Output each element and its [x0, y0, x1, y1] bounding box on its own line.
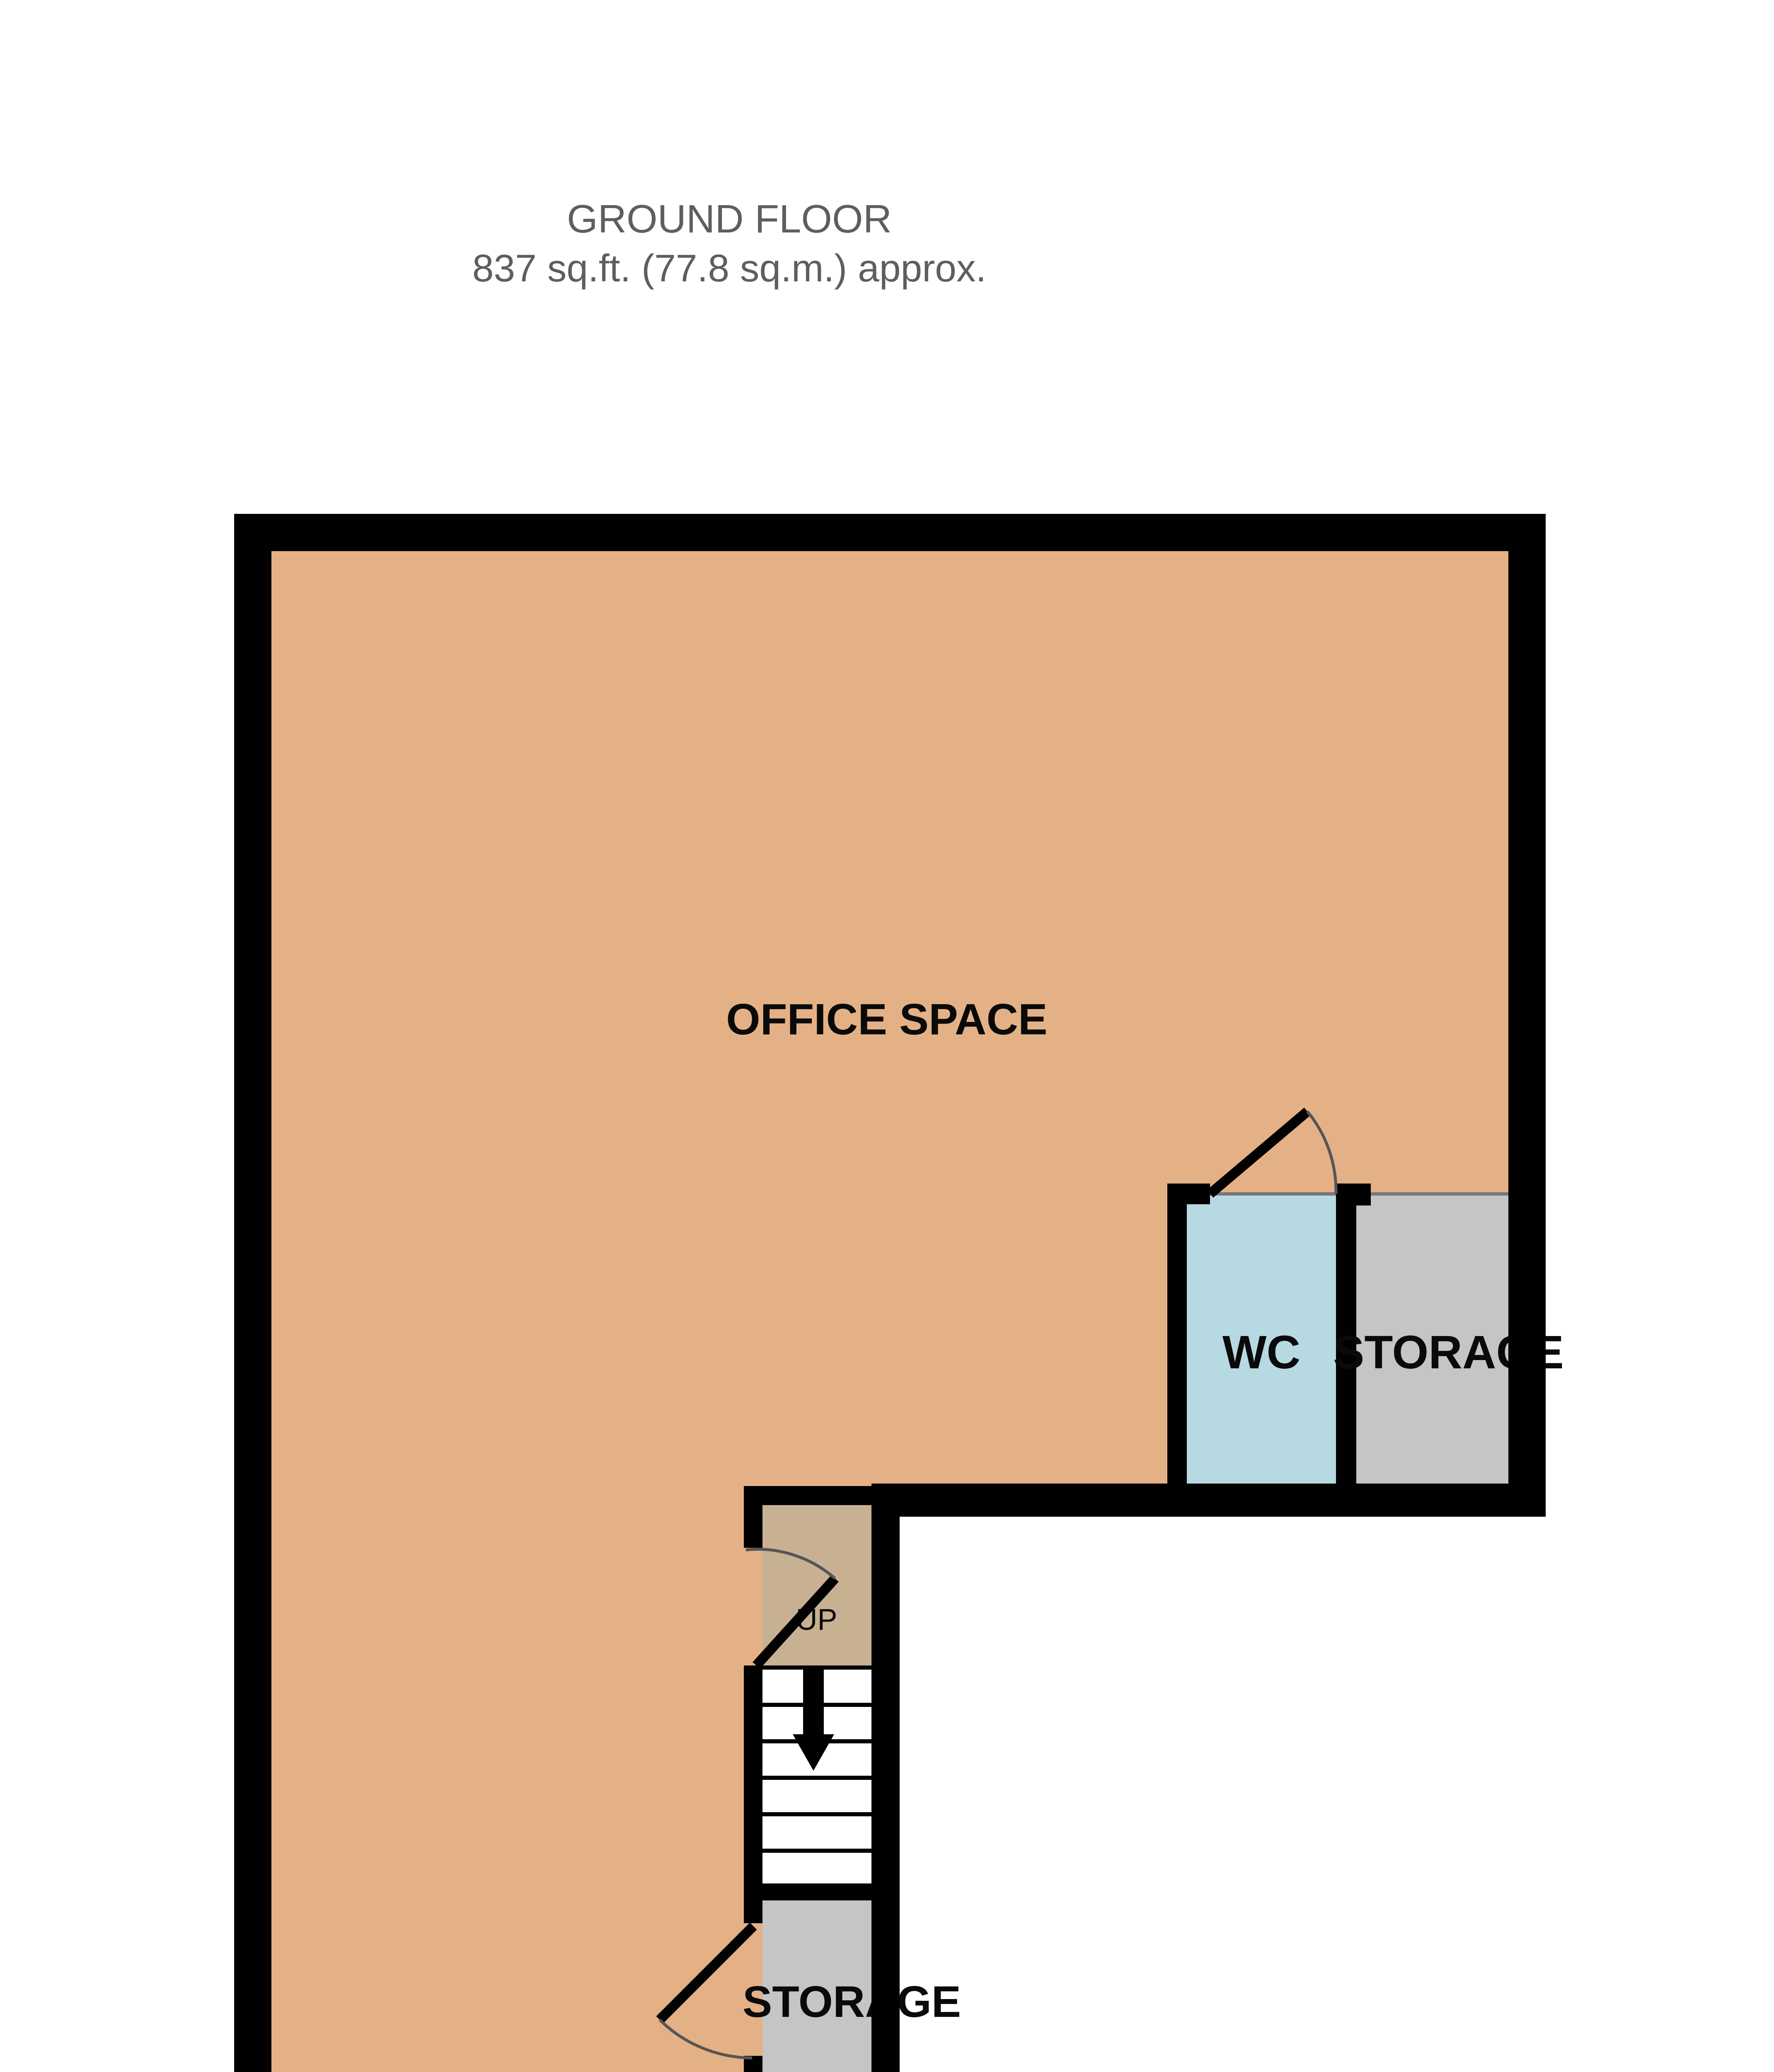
stair-tread [762, 1776, 871, 1780]
stairs-up-label: UP [762, 1603, 871, 1637]
wc-label: WC [1187, 1325, 1336, 1379]
floor-title-area: 837 sq.ft. (77.8 sq.m.) approx. [315, 244, 1144, 293]
wall-wc-door-stub [1167, 1184, 1210, 1204]
floorplan-page: { "title": { "line1": "GROUND FLOOR", "l… [0, 0, 1774, 2072]
wall-mid-horizontal [871, 1484, 1546, 1517]
wall-right-exterior-upper [1508, 514, 1546, 1517]
stair-direction-arrow-head [793, 1734, 834, 1771]
floor-title: GROUND FLOOR 837 sq.ft. (77.8 sq.m.) app… [315, 195, 1144, 293]
storage-middle-label: STORAGE [743, 1976, 950, 2027]
wall-stairs-bottom [744, 1883, 871, 1900]
wall-landing-top [744, 1486, 871, 1505]
wall-top-exterior [234, 514, 1546, 551]
wall-landing-left-stub [744, 1505, 762, 1548]
wall-partition-top-stub [1336, 1184, 1371, 1205]
stair-direction-arrow-shaft [803, 1668, 824, 1735]
stair-landing [762, 1505, 871, 1665]
stair-tread [762, 1849, 871, 1853]
wall-wc-left [1167, 1184, 1187, 1487]
wall-left-exterior [234, 514, 271, 2072]
stair-tread [762, 1812, 871, 1816]
wall-storage-mid-left-stub [744, 2056, 762, 2072]
wall-right-wing [871, 1484, 900, 2072]
floor-title-name: GROUND FLOOR [315, 195, 1144, 244]
office-space-label: OFFICE SPACE [680, 995, 1094, 1045]
